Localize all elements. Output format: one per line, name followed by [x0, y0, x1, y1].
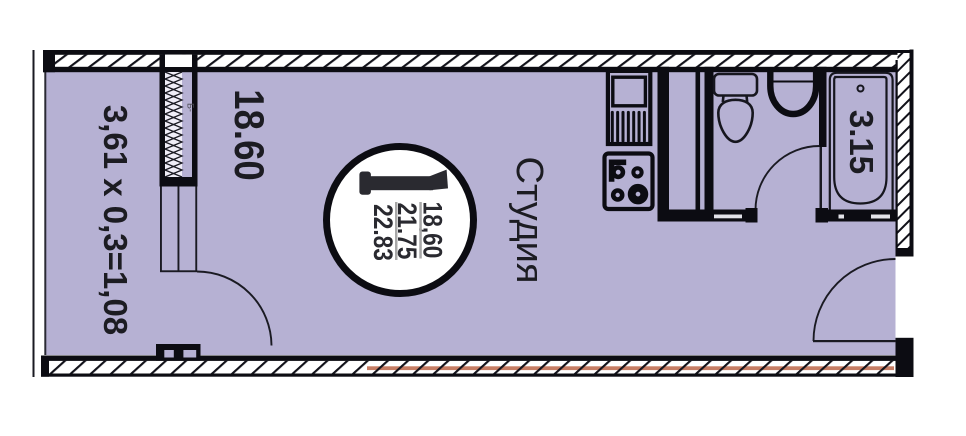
svg-text:Б-: Б-	[186, 103, 196, 112]
svg-text:3.15: 3.15	[843, 110, 880, 174]
svg-text:Студия: Студия	[508, 157, 550, 284]
svg-text:22.83: 22.83	[367, 204, 397, 261]
svg-text:18.60: 18.60	[225, 89, 272, 180]
svg-text:3,61 x 0,3=1,08: 3,61 x 0,3=1,08	[97, 105, 134, 335]
